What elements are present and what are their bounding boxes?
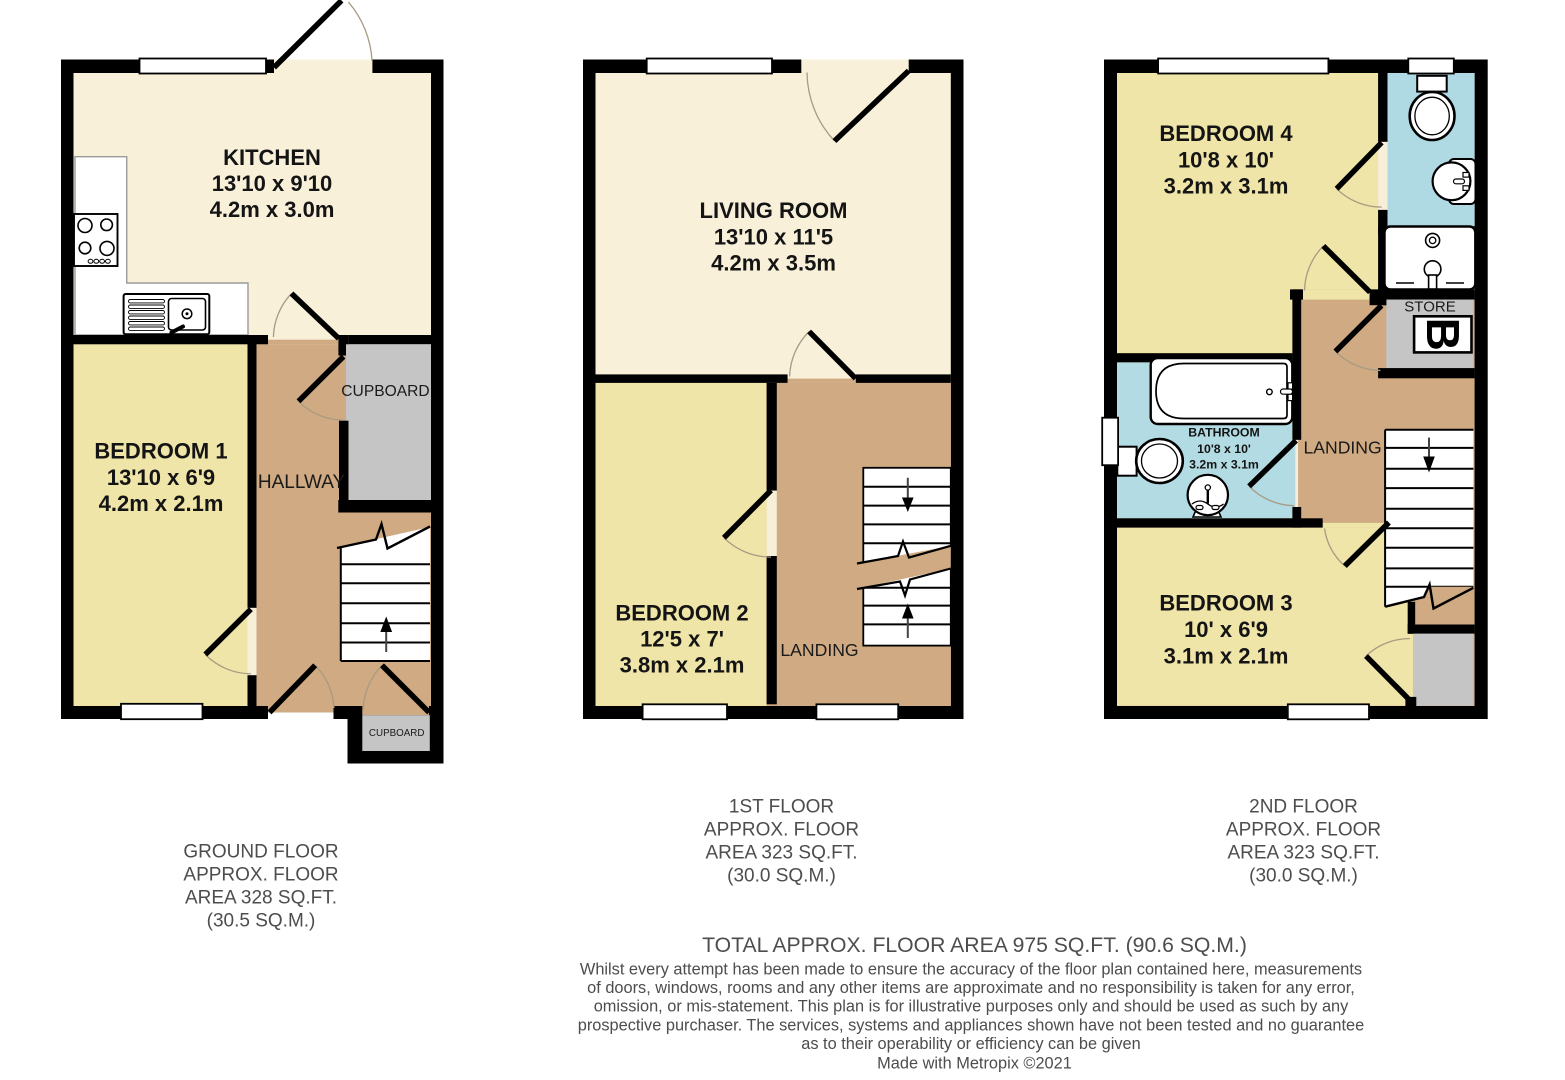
- svg-text:KITCHEN: KITCHEN: [223, 145, 321, 170]
- svg-text:BEDROOM 1: BEDROOM 1: [94, 439, 227, 464]
- svg-text:AREA 323 SQ.FT.: AREA 323 SQ.FT.: [1227, 843, 1379, 864]
- svg-text:Made with Metropix ©2021: Made with Metropix ©2021: [877, 1054, 1072, 1072]
- svg-text:Whilst every attempt has been: Whilst every attempt has been made to en…: [580, 960, 1362, 978]
- svg-text:2ND FLOOR: 2ND FLOOR: [1249, 797, 1358, 818]
- svg-text:12'5 x 7': 12'5 x 7': [640, 627, 724, 652]
- svg-text:B: B: [1417, 318, 1469, 351]
- svg-text:4.2m x 3.0m: 4.2m x 3.0m: [210, 197, 335, 222]
- svg-text:CUPBOARD: CUPBOARD: [341, 383, 429, 400]
- svg-text:4.2m x 3.5m: 4.2m x 3.5m: [711, 251, 836, 276]
- svg-text:(30.5 SQ.M.): (30.5 SQ.M.): [207, 911, 316, 932]
- svg-text:13'10 x 6'9: 13'10 x 6'9: [107, 465, 215, 490]
- svg-text:of doors, windows, rooms and a: of doors, windows, rooms and any other i…: [587, 979, 1355, 997]
- svg-text:TOTAL APPROX. FLOOR AREA 975 S: TOTAL APPROX. FLOOR AREA 975 SQ.FT. (90.…: [702, 934, 1247, 957]
- svg-text:3.2m x 3.1m: 3.2m x 3.1m: [1164, 174, 1289, 199]
- svg-text:BEDROOM 3: BEDROOM 3: [1159, 591, 1292, 616]
- svg-text:CUPBOARD: CUPBOARD: [369, 728, 425, 739]
- svg-text:BATHROOM: BATHROOM: [1188, 426, 1260, 440]
- svg-text:HALLWAY: HALLWAY: [258, 472, 346, 493]
- svg-text:LIVING ROOM: LIVING ROOM: [700, 198, 848, 223]
- svg-text:omission, or mis-statement. Th: omission, or mis-statement. This plan is…: [594, 998, 1349, 1016]
- svg-text:10' x 6'9: 10' x 6'9: [1184, 617, 1268, 642]
- svg-text:BEDROOM 4: BEDROOM 4: [1159, 121, 1293, 146]
- svg-text:LANDING: LANDING: [780, 640, 858, 660]
- svg-text:3.1m x 2.1m: 3.1m x 2.1m: [1164, 644, 1289, 669]
- svg-text:4.2m x 2.1m: 4.2m x 2.1m: [99, 491, 224, 516]
- svg-text:(30.0 SQ.M.): (30.0 SQ.M.): [1249, 866, 1358, 887]
- svg-text:10'8 x 10': 10'8 x 10': [1178, 148, 1274, 173]
- svg-text:GROUND FLOOR: GROUND FLOOR: [183, 842, 338, 863]
- svg-text:AREA 323 SQ.FT.: AREA 323 SQ.FT.: [705, 843, 857, 864]
- svg-text:1ST FLOOR: 1ST FLOOR: [729, 797, 834, 818]
- svg-text:3.2m x 3.1m: 3.2m x 3.1m: [1189, 458, 1259, 472]
- svg-text:3.8m x 2.1m: 3.8m x 2.1m: [620, 653, 745, 678]
- svg-text:10'8 x 10': 10'8 x 10': [1197, 442, 1251, 456]
- svg-text:(30.0 SQ.M.): (30.0 SQ.M.): [727, 866, 836, 887]
- svg-text:prospective purchaser. The ser: prospective purchaser. The services, sys…: [578, 1017, 1365, 1035]
- svg-text:as to their operability or eff: as to their operability or efficiency ca…: [801, 1035, 1140, 1053]
- svg-text:BEDROOM 2: BEDROOM 2: [615, 601, 748, 626]
- svg-text:STORE: STORE: [1404, 298, 1455, 315]
- svg-text:APPROX. FLOOR: APPROX. FLOOR: [704, 820, 859, 841]
- svg-text:APPROX. FLOOR: APPROX. FLOOR: [1226, 820, 1381, 841]
- svg-text:APPROX. FLOOR: APPROX. FLOOR: [183, 865, 338, 886]
- svg-text:LANDING: LANDING: [1303, 437, 1381, 457]
- svg-text:13'10 x 11'5: 13'10 x 11'5: [714, 225, 833, 250]
- svg-text:AREA 328 SQ.FT.: AREA 328 SQ.FT.: [185, 888, 337, 909]
- svg-text:13'10 x 9'10: 13'10 x 9'10: [212, 171, 333, 196]
